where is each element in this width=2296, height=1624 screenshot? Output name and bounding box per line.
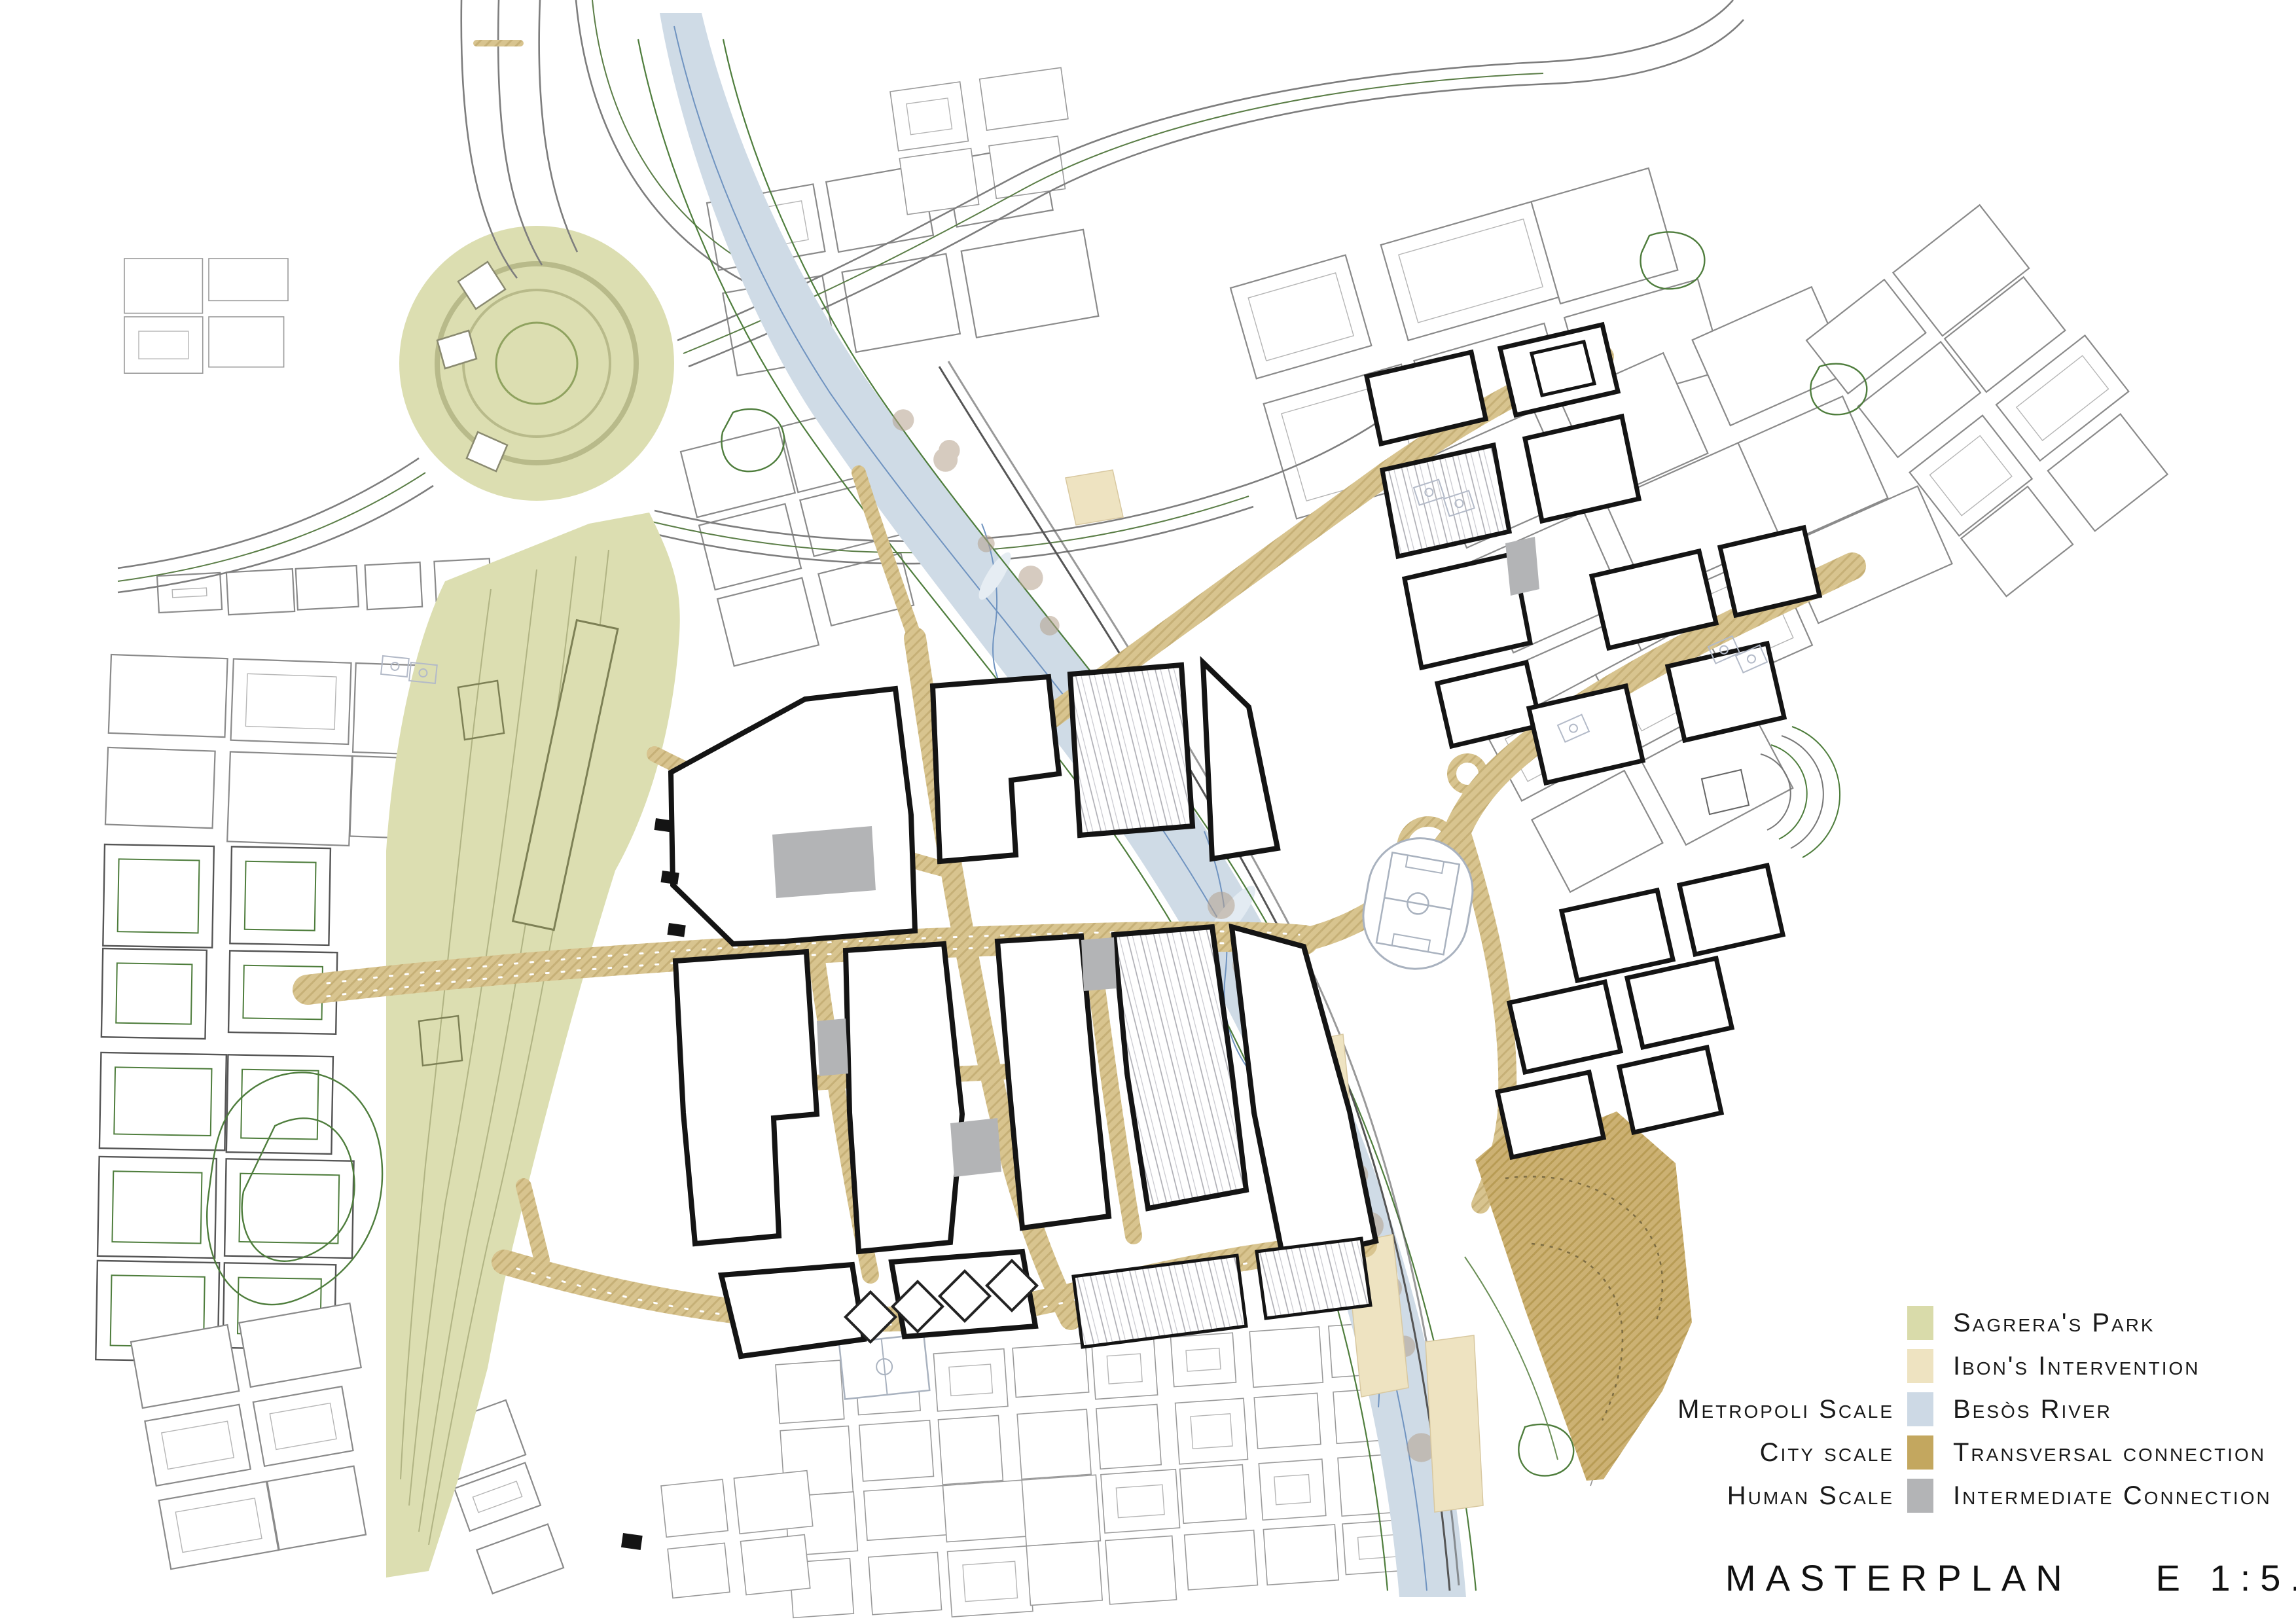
legend-scale-label: Human Scale — [1677, 1481, 1907, 1511]
legend-scale-label: Metropoli Scale — [1677, 1395, 1907, 1424]
map-legend: Sagrera's Park Ibon's Intervention Metro… — [1677, 1301, 2296, 1517]
map-title-text: MASTERPLAN — [1725, 1557, 2072, 1599]
map-title: MASTERPLAN E 1:5.000 — [1725, 1557, 2296, 1599]
legend-row: Metropoli Scale Besòs River — [1677, 1388, 2296, 1431]
map-scale-text: E 1:5.000 — [2156, 1557, 2296, 1599]
legend-item-label: Ibon's Intervention — [1945, 1352, 2296, 1381]
legend-item-label: Transversal connection — [1945, 1438, 2296, 1468]
legend-item-label: Besòs River — [1945, 1395, 2296, 1424]
football-field — [839, 1334, 929, 1399]
legend-row: Sagrera's Park — [1677, 1301, 2296, 1344]
legend-row: Ibon's Intervention — [1677, 1344, 2296, 1388]
sagreras-park-strip — [386, 513, 680, 1578]
riverside-hill-park — [1475, 1111, 1692, 1481]
masterplan-sheet: Sagrera's Park Ibon's Intervention Metro… — [0, 0, 2296, 1624]
legend-swatch-besos-river — [1907, 1392, 1933, 1426]
sagreras-park-area — [386, 513, 680, 1578]
legend-item-label: Sagrera's Park — [1945, 1308, 2296, 1338]
legend-row: Human Scale Intermediate Connection — [1677, 1474, 2296, 1517]
small-buildings — [621, 818, 686, 1550]
legend-row: City scale Transversal connection — [1677, 1431, 2296, 1474]
legend-swatch-transversal-connection — [1907, 1435, 1933, 1470]
intervention-blocks-west — [671, 662, 1376, 1356]
legend-swatch-ibons-intervention — [1907, 1349, 1933, 1383]
legend-item-label: Intermediate Connection — [1945, 1481, 2296, 1511]
roundabout-park — [399, 226, 674, 501]
legend-swatch-intermediate-connection — [1907, 1479, 1933, 1513]
legend-swatch-sagreras-park — [1907, 1306, 1933, 1340]
legend-scale-label: City scale — [1677, 1438, 1907, 1468]
